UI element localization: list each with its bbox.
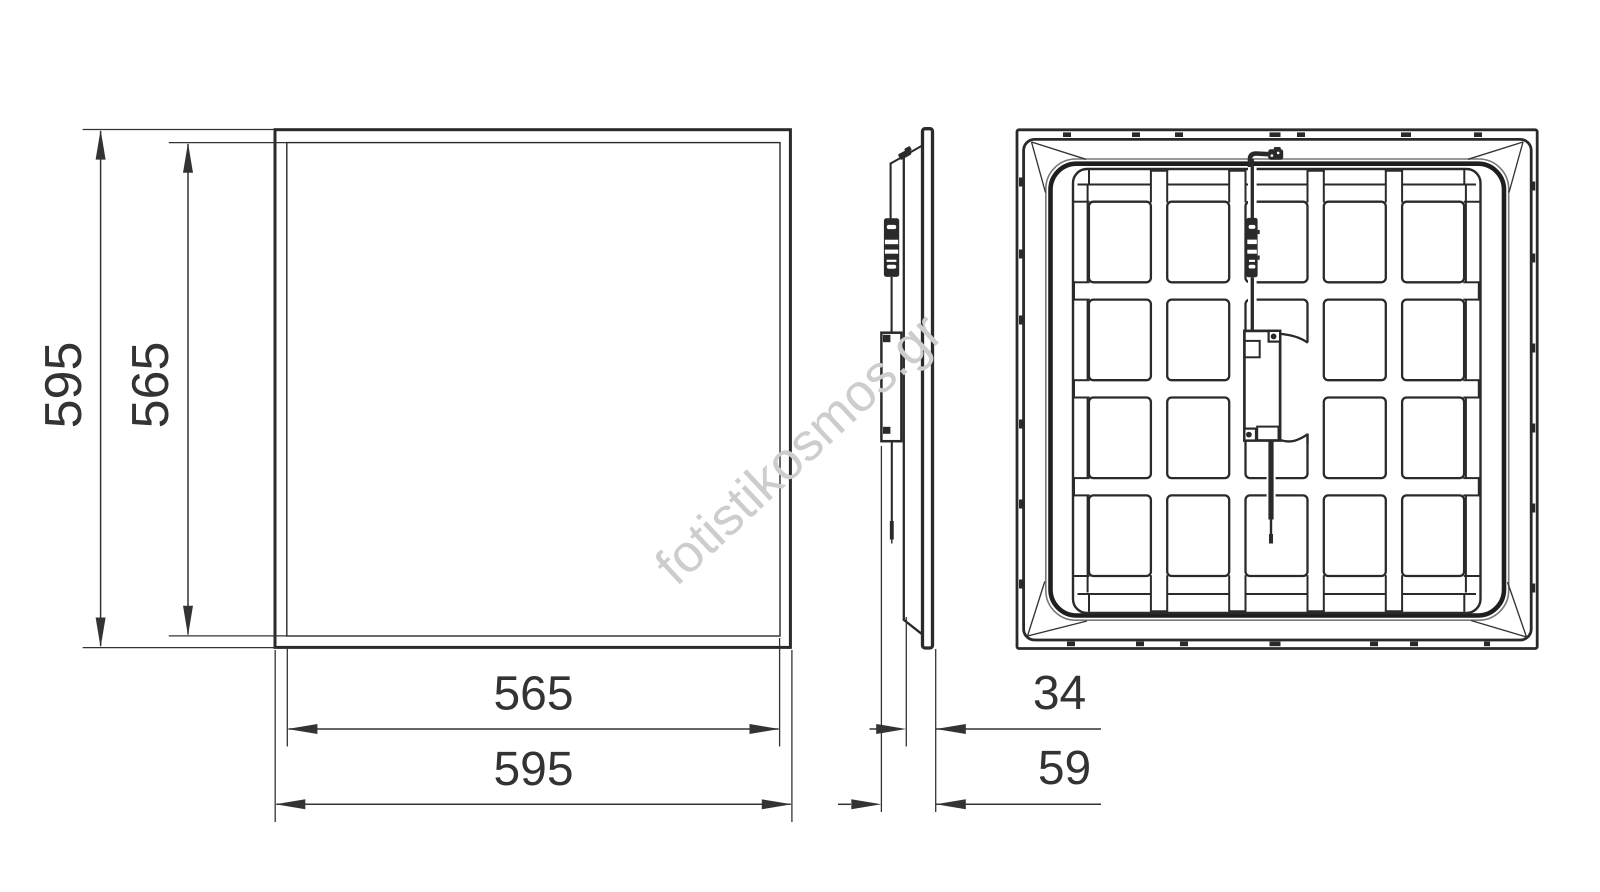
svg-text:565: 565: [493, 668, 573, 721]
svg-text:595: 595: [493, 743, 573, 796]
svg-text:565: 565: [122, 342, 180, 429]
svg-text:595: 595: [35, 342, 93, 429]
svg-text:59: 59: [1038, 742, 1091, 795]
svg-text:34: 34: [1033, 667, 1086, 720]
